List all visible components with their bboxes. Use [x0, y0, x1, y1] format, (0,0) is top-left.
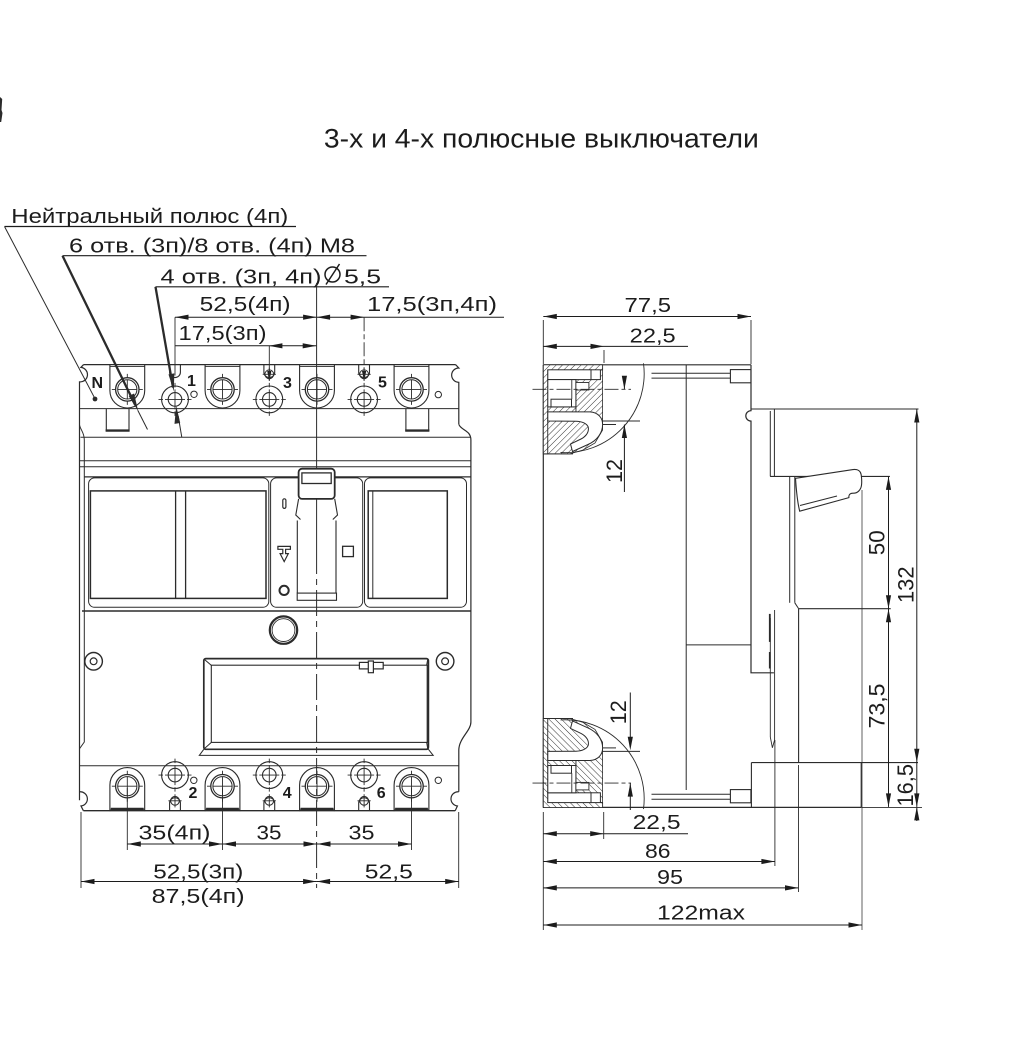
- svg-text:5: 5: [378, 375, 387, 392]
- svg-text:87,5(4п): 87,5(4п): [152, 886, 245, 908]
- svg-text:N: N: [92, 375, 104, 392]
- svg-text:1: 1: [187, 373, 196, 390]
- svg-text:22,5: 22,5: [630, 325, 676, 347]
- svg-text:95: 95: [657, 867, 683, 889]
- svg-text:Нейтральный полюс (4п): Нейтральный полюс (4п): [11, 205, 288, 228]
- svg-text:86: 86: [645, 841, 671, 863]
- svg-text:2: 2: [189, 785, 198, 802]
- svg-text:22,5: 22,5: [633, 812, 681, 834]
- svg-text:3-х и 4-х полюсные выключатели: 3-х и 4-х полюсные выключатели: [324, 123, 759, 153]
- svg-text:73,5: 73,5: [865, 684, 890, 729]
- svg-text:4 отв. (3п, 4п): 4 отв. (3п, 4п): [161, 266, 322, 289]
- svg-text:17,5(3п): 17,5(3п): [179, 323, 267, 345]
- svg-text:52,5: 52,5: [365, 861, 413, 883]
- svg-text:4: 4: [283, 785, 292, 802]
- svg-text:3: 3: [283, 375, 292, 392]
- svg-text:52,5(4п): 52,5(4п): [200, 294, 291, 316]
- svg-text:35: 35: [257, 822, 282, 844]
- svg-text:12: 12: [602, 459, 627, 483]
- svg-text:12: 12: [606, 700, 631, 724]
- svg-text:52,5(3п): 52,5(3п): [153, 861, 243, 883]
- svg-text:35(4п): 35(4п): [139, 822, 211, 844]
- svg-text:6: 6: [377, 785, 386, 802]
- svg-text:122max: 122max: [657, 903, 745, 925]
- svg-text:16,5: 16,5: [893, 764, 918, 807]
- svg-text:5,5: 5,5: [344, 266, 381, 289]
- svg-text:17,5(3п,4п): 17,5(3п,4п): [367, 294, 497, 316]
- svg-text:132: 132: [894, 567, 919, 604]
- svg-text:50: 50: [865, 530, 890, 555]
- svg-text:6 отв. (3п)/8 отв. (4п) М8: 6 отв. (3п)/8 отв. (4п) М8: [69, 235, 355, 258]
- svg-text:35: 35: [349, 822, 375, 844]
- svg-text:77,5: 77,5: [625, 295, 672, 317]
